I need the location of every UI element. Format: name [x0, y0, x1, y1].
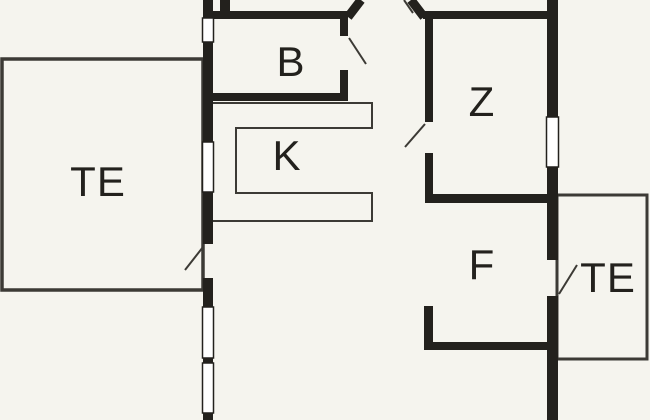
- left-exterior-wall-seg-3: [203, 192, 213, 244]
- floor-plan-canvas: TE B K Z F TE: [0, 0, 650, 420]
- left-wall-window-4: [203, 363, 214, 413]
- room-label-b: B: [276, 41, 305, 83]
- left-exterior-wall-seg-5: [203, 413, 213, 420]
- top-wall-left-segment: [203, 11, 348, 19]
- right-wall-window-1: [547, 117, 559, 167]
- right-exterior-wall-seg-3: [547, 296, 558, 420]
- room-z-left-wall-upper: [425, 19, 433, 122]
- room-b-bottom-wall: [203, 93, 348, 101]
- room-label-terrace-right: TE: [580, 257, 636, 299]
- room-label-z: Z: [469, 81, 496, 123]
- room-z-bottom-wall: [425, 194, 558, 203]
- room-b-right-wall-upper: [340, 19, 348, 36]
- left-wall-window-1: [203, 18, 214, 42]
- floor-plan-svg: [0, 0, 650, 420]
- left-exterior-wall-seg-4: [203, 278, 213, 307]
- room-label-k: K: [272, 135, 301, 177]
- right-exterior-wall-seg-2: [547, 167, 558, 260]
- left-wall-window-3: [203, 307, 214, 358]
- room-label-f: F: [469, 244, 496, 286]
- left-exterior-wall-seg-2: [203, 42, 213, 142]
- left-wall-window-2: [203, 142, 214, 192]
- right-exterior-wall-seg-1: [547, 0, 558, 117]
- top-wall-right-segment: [423, 11, 558, 19]
- room-label-terrace-left: TE: [70, 161, 126, 203]
- room-f-partition-horizontal: [424, 342, 558, 350]
